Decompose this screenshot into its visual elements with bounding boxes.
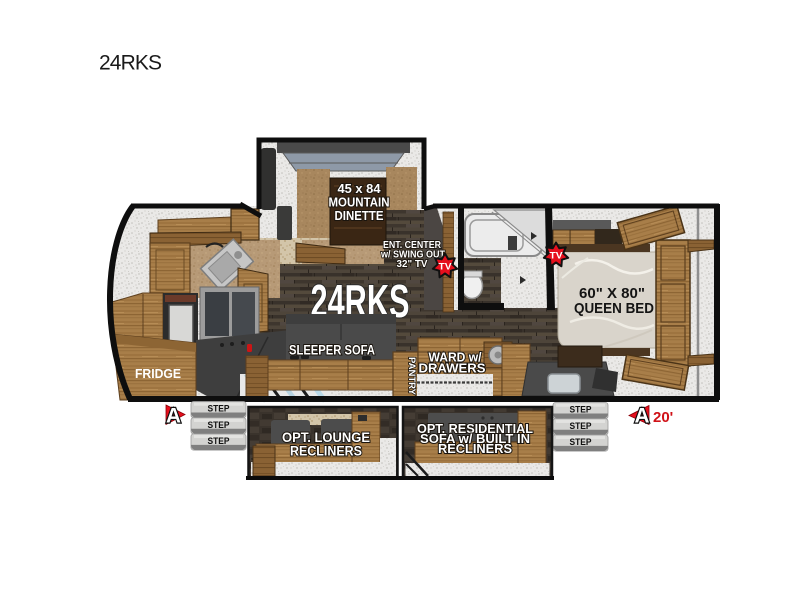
svg-text:45 x 84: 45 x 84 xyxy=(338,182,381,196)
svg-text:20': 20' xyxy=(653,409,673,426)
svg-text:QUEEN BED: QUEEN BED xyxy=(574,300,654,317)
svg-text:STEP: STEP xyxy=(570,437,593,448)
svg-text:DINETTE: DINETTE xyxy=(335,209,384,223)
svg-text:24RKS: 24RKS xyxy=(99,52,162,75)
svg-text:A: A xyxy=(166,405,181,428)
svg-text:A: A xyxy=(635,405,650,428)
svg-text:RECLINERS: RECLINERS xyxy=(438,442,512,456)
svg-text:DRAWERS: DRAWERS xyxy=(419,362,486,376)
svg-text:PANTRY: PANTRY xyxy=(406,357,417,396)
svg-text:STEP: STEP xyxy=(208,404,231,415)
svg-text:32" TV: 32" TV xyxy=(397,258,428,270)
svg-text:FRIDGE: FRIDGE xyxy=(135,367,181,381)
svg-text:STEP: STEP xyxy=(208,436,231,447)
svg-text:RECLINERS: RECLINERS xyxy=(290,444,362,459)
svg-text:STEP: STEP xyxy=(208,420,231,431)
svg-text:MOUNTAIN: MOUNTAIN xyxy=(329,196,390,210)
svg-text:STEP: STEP xyxy=(570,421,593,432)
svg-text:STEP: STEP xyxy=(570,405,593,416)
